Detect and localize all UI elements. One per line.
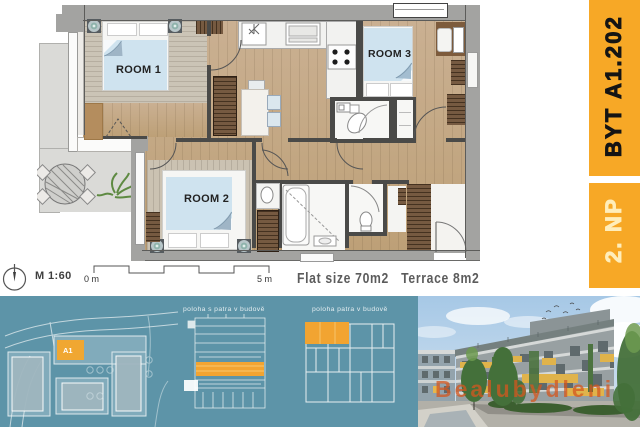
svg-text:Bealubydleni: Bealubydleni (435, 376, 614, 402)
svg-text:poloha s patra v budově: poloha s patra v budově (183, 306, 265, 313)
svg-text:A1: A1 (63, 346, 73, 355)
svg-text:poloha patra v budově: poloha patra v budově (312, 306, 388, 313)
